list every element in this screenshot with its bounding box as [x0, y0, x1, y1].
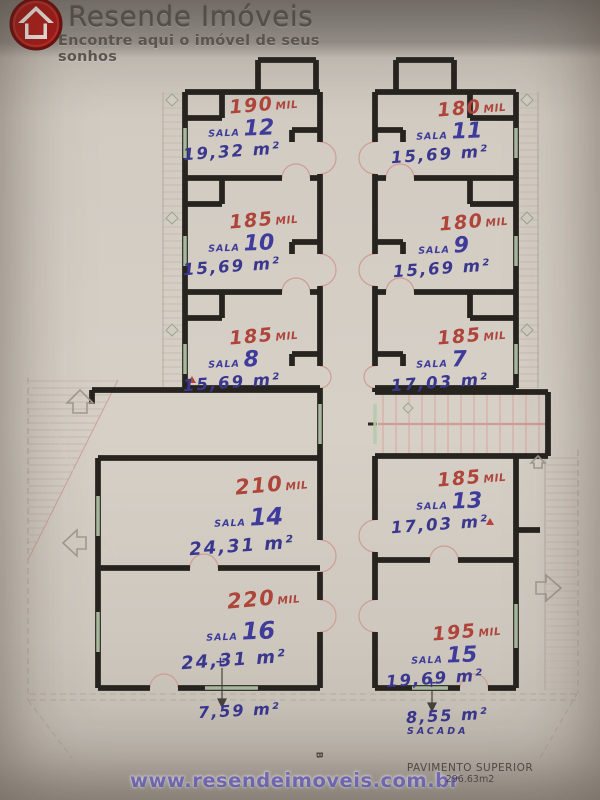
plus-mark-left: + [215, 655, 226, 670]
name-sala-16: SALA16 [206, 614, 331, 646]
left-arrow-icon [63, 530, 86, 556]
plan-total-area: 296.63m2 [385, 774, 555, 785]
room-label-sala-8: 185MIL SALA8 15,69 m² [181, 321, 333, 392]
name-sala-14: SALA14 [214, 500, 339, 532]
right-balcony-hatch [546, 452, 578, 690]
room-label-sala-13: 185MIL SALA13 17,03 m² [389, 463, 541, 534]
marker-b: B [313, 752, 323, 759]
room-label-sala-14: 210MIL SALA14 24,31 m² [187, 469, 340, 557]
room-label-sala-11: 180MIL SALA11 15,69 m² [389, 93, 541, 164]
room-label-sala-9: 180MIL SALA9 15,69 m² [391, 207, 543, 278]
room-label-sala-10: 185MIL SALA10 15,69 m² [181, 205, 333, 276]
sacada-label: SACADA [407, 726, 468, 737]
price-sala-14: 210MIL [234, 467, 338, 500]
room-label-sala-16: 220MIL SALA16 24,31 m² [179, 583, 332, 671]
price-sala-16: 220MIL [226, 581, 330, 614]
room-label-sala-7: 185MIL SALA7 17,03 m² [389, 321, 541, 392]
plus-mark-right: + [426, 676, 437, 691]
plan-title: PAVIMENTO SUPERIOR [385, 762, 555, 774]
room-label-sala-12: 190MIL SALA12 19,32 m² [181, 90, 333, 161]
room-label-sala-15: 195MIL SALA15 19,69 m² [384, 617, 536, 688]
website-url: www.resendeimoveis.com.br [130, 769, 410, 792]
floorplan-photo: Resende Imóveis Encontre aqui o imóvel d… [0, 0, 600, 800]
